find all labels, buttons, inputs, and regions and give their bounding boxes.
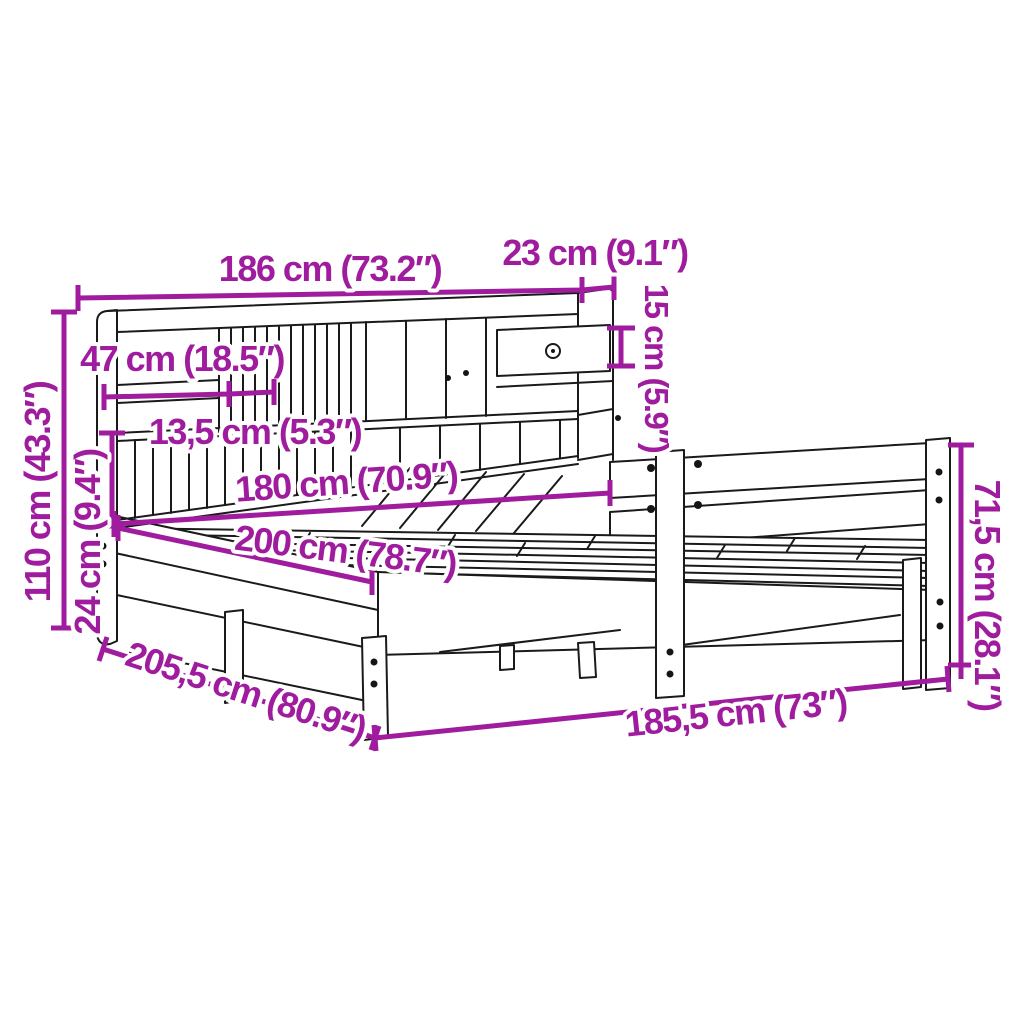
label-total-length: 205,5 cm (80.9″) — [121, 633, 371, 749]
label-shelf-clearance: 24 cm (9.4″) — [67, 449, 108, 635]
dimension-diagram-page: 186 cm (73.2″) 23 cm (9.1″) 15 cm (5.9″)… — [0, 0, 1024, 1024]
label-mattress-width: 180 cm (70.9″) — [234, 453, 459, 509]
bed-dimension-diagram: 186 cm (73.2″) 23 cm (9.1″) 15 cm (5.9″)… — [0, 0, 1024, 1024]
dim-side-rail-height: 71,5 cm (28.1″) — [948, 445, 1008, 711]
dimension-annotations: 186 cm (73.2″) 23 cm (9.1″) 15 cm (5.9″)… — [17, 232, 1008, 751]
label-bookcase-depth: 23 cm (9.1″) — [502, 232, 688, 273]
label-drawer-height: 15 cm (5.9″) — [638, 284, 675, 453]
label-headboard-height: 110 cm (43.3″) — [17, 381, 58, 602]
dim-drawer-height: 15 cm (5.9″) — [607, 284, 675, 453]
label-shelf-compartment-width: 47 cm (18.5″) — [80, 338, 284, 379]
label-bookcase-width: 186 cm (73.2″) — [219, 248, 442, 289]
label-side-rail-height: 71,5 cm (28.1″) — [967, 480, 1008, 711]
label-small-slot-width: 13,5 cm (5.3″) — [149, 411, 362, 452]
